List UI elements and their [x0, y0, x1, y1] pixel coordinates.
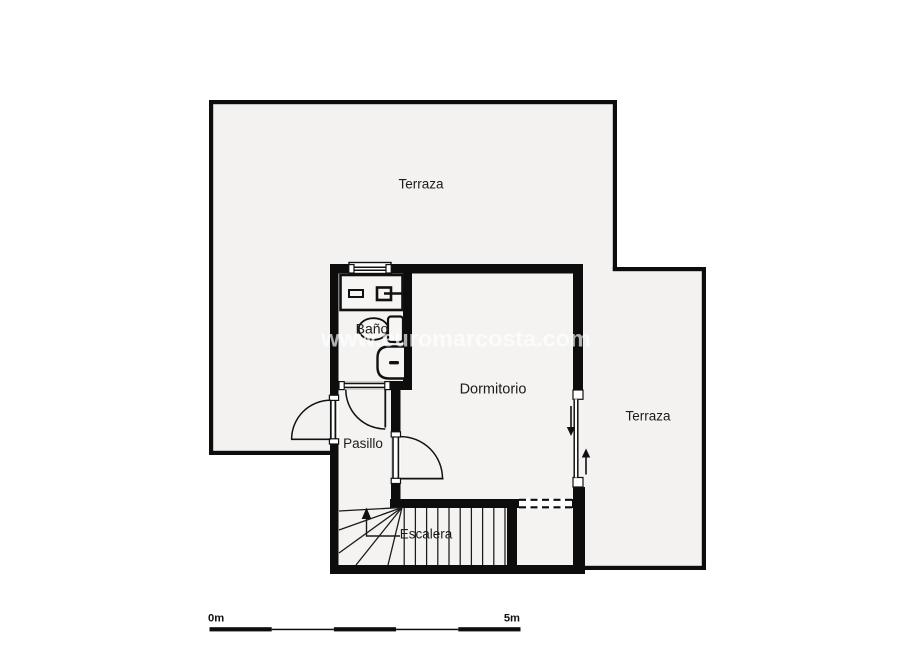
svg-text:Terraza: Terraza	[398, 177, 444, 192]
svg-text:Pasillo: Pasillo	[343, 436, 383, 451]
svg-text:Dormitorio: Dormitorio	[460, 382, 527, 398]
svg-text:Terraza: Terraza	[625, 409, 671, 424]
svg-text:0m: 0m	[208, 613, 224, 625]
svg-text:Escalera: Escalera	[400, 527, 453, 542]
svg-text:5m: 5m	[504, 613, 520, 625]
svg-text:www.euromarcosta.com: www.euromarcosta.com	[320, 326, 591, 352]
